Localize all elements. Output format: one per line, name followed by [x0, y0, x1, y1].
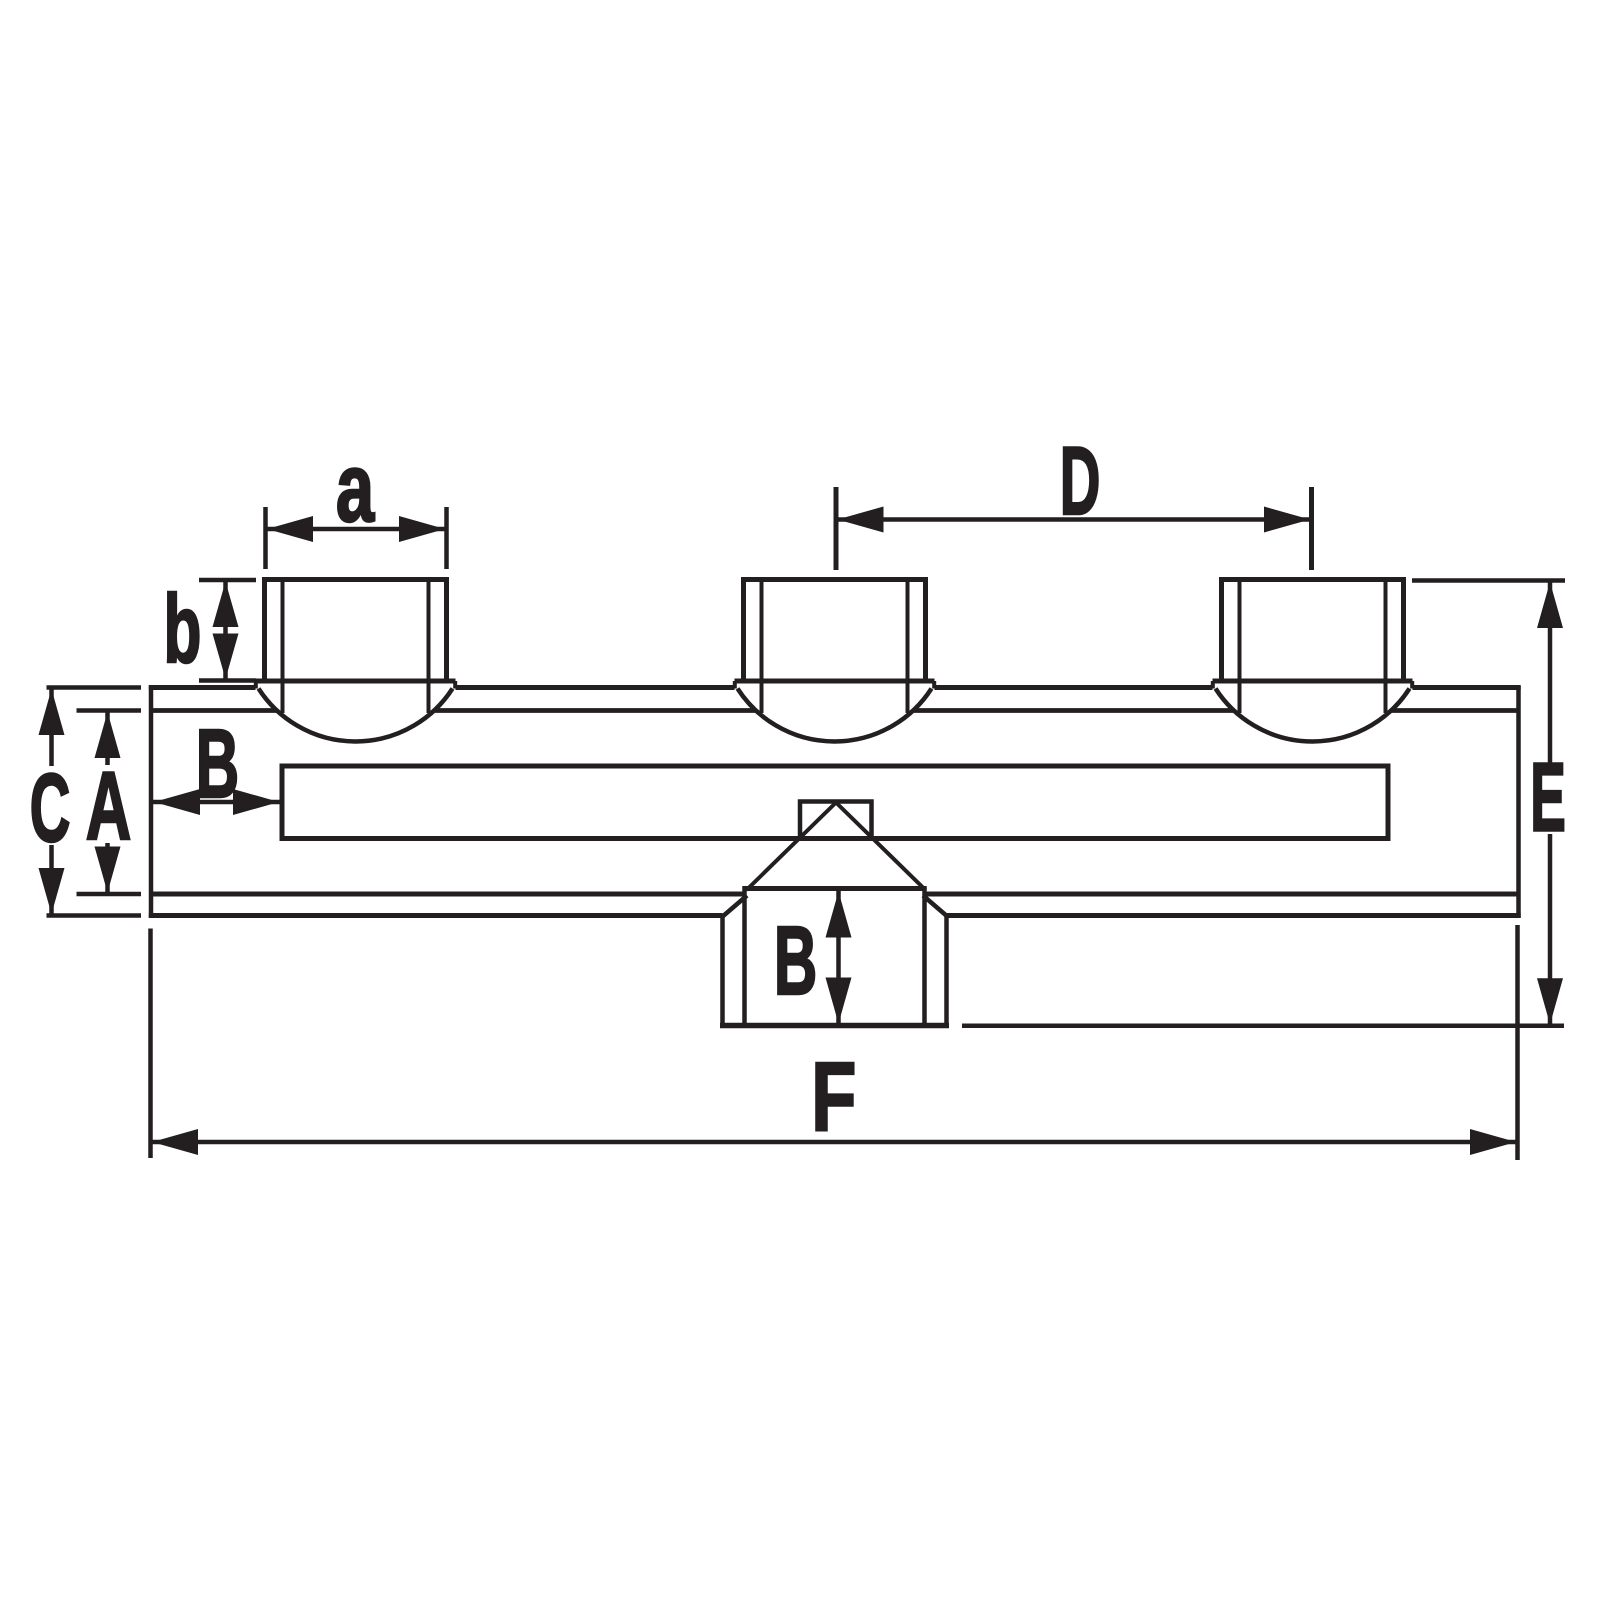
svg-text:a: a	[336, 433, 375, 541]
svg-text:B: B	[196, 710, 239, 818]
svg-text:D: D	[1060, 426, 1101, 535]
svg-text:B: B	[774, 907, 817, 1015]
svg-text:E: E	[1530, 743, 1566, 852]
svg-text:A: A	[86, 752, 132, 860]
svg-text:F: F	[811, 1043, 856, 1151]
svg-text:b: b	[164, 575, 202, 683]
svg-text:C: C	[30, 753, 71, 862]
